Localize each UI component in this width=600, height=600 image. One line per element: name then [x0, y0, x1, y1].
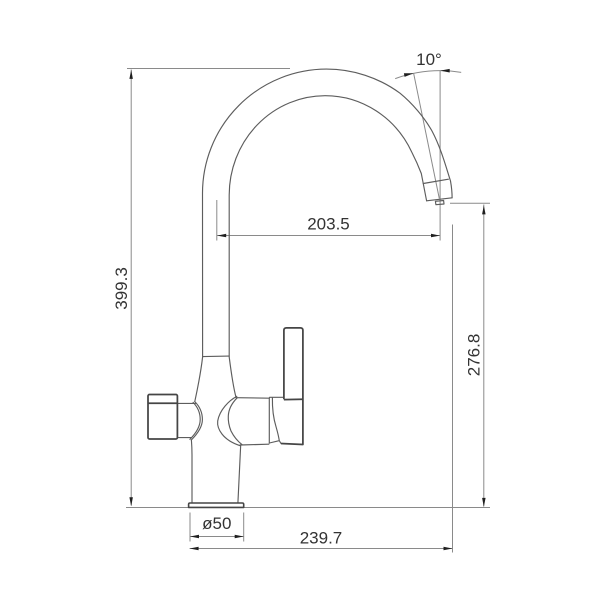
svg-text:203.5: 203.5: [307, 215, 350, 234]
svg-text:10°: 10°: [416, 50, 442, 69]
svg-text:276.8: 276.8: [464, 334, 483, 377]
svg-text:ø50: ø50: [202, 514, 231, 533]
svg-text:399.3: 399.3: [112, 267, 131, 310]
svg-text:239.7: 239.7: [300, 529, 343, 548]
